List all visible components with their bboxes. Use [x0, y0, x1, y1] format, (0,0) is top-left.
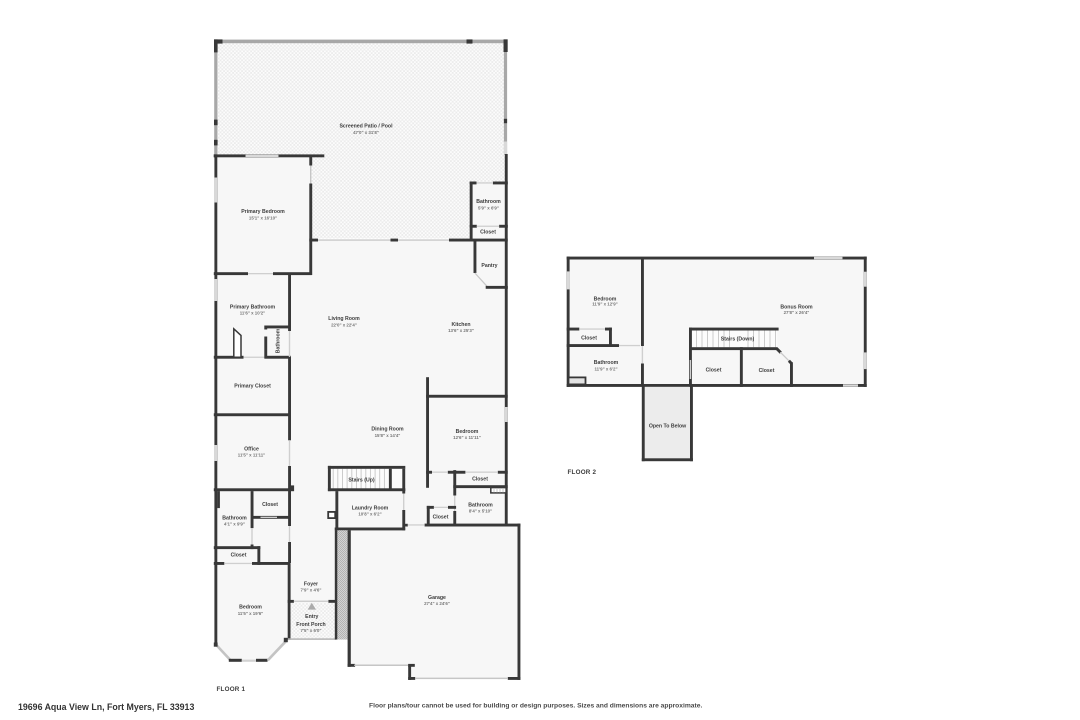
svg-text:Living Room: Living Room	[328, 316, 360, 322]
svg-text:Primary Closet: Primary Closet	[234, 384, 271, 390]
svg-text:Closet: Closet	[706, 368, 722, 374]
svg-text:11'9" x 12'9": 11'9" x 12'9"	[592, 302, 618, 307]
svg-text:13'6" x 25'3": 13'6" x 25'3"	[448, 328, 474, 333]
svg-text:Primary Bedroom: Primary Bedroom	[241, 209, 285, 215]
svg-text:12'6" x 11'11": 12'6" x 11'11"	[453, 435, 481, 440]
svg-text:Stairs (Up): Stairs (Up)	[348, 478, 375, 484]
svg-text:Dining Room: Dining Room	[371, 427, 404, 433]
svg-text:Open To Below: Open To Below	[649, 424, 687, 430]
svg-text:10'8" x 6'2": 10'8" x 6'2"	[358, 512, 381, 517]
svg-text:Bathroom: Bathroom	[594, 360, 619, 366]
svg-text:FLOOR 2: FLOOR 2	[568, 469, 597, 476]
svg-text:22'0" x 22'4": 22'0" x 22'4"	[331, 322, 357, 327]
svg-text:8'4" x 5'10": 8'4" x 5'10"	[469, 509, 492, 514]
svg-text:27'4" x 24'6": 27'4" x 24'6"	[424, 601, 450, 606]
svg-text:19696 Aqua View Ln, Fort Myers: 19696 Aqua View Ln, Fort Myers, FL 33913	[18, 702, 194, 712]
svg-text:Closet: Closet	[581, 336, 597, 342]
svg-text:Entry: Entry	[305, 614, 318, 620]
svg-text:15'8" x 14'4": 15'8" x 14'4"	[375, 433, 401, 438]
svg-text:Bedroom: Bedroom	[239, 605, 262, 611]
svg-text:Closet: Closet	[231, 553, 247, 559]
svg-text:Closet: Closet	[472, 477, 488, 483]
svg-text:Bathroom: Bathroom	[276, 328, 282, 353]
svg-text:5'9" x 6'9": 5'9" x 6'9"	[478, 206, 499, 211]
svg-text:27'8" x 26'4": 27'8" x 26'4"	[784, 310, 810, 315]
svg-text:Bathroom: Bathroom	[476, 199, 501, 205]
svg-text:Closet: Closet	[759, 368, 775, 374]
svg-text:4'1" x 9'9": 4'1" x 9'9"	[224, 522, 245, 527]
svg-text:Pantry: Pantry	[481, 263, 497, 269]
svg-text:Screened Patio / Pool: Screened Patio / Pool	[339, 124, 393, 130]
svg-text:11'9" x 6'2": 11'9" x 6'2"	[594, 367, 617, 372]
svg-text:Closet: Closet	[262, 502, 278, 508]
svg-text:11'5" x 11'11": 11'5" x 11'11"	[238, 453, 266, 458]
svg-text:Closet: Closet	[480, 230, 496, 236]
svg-text:7'5" x 6'0": 7'5" x 6'0"	[301, 628, 322, 633]
svg-text:Closet: Closet	[433, 515, 449, 521]
svg-text:FLOOR 1: FLOOR 1	[217, 686, 246, 693]
svg-text:11'5" x 19'6": 11'5" x 19'6"	[238, 611, 264, 616]
svg-text:15'1" x 16'10": 15'1" x 16'10"	[249, 216, 277, 221]
svg-text:7'9" x 4'6": 7'9" x 4'6"	[301, 588, 322, 593]
svg-text:Stairs (Down): Stairs (Down)	[721, 337, 755, 343]
svg-text:Floor plans/tour cannot be use: Floor plans/tour cannot be used for buil…	[369, 703, 702, 710]
svg-text:47'0" x 31'8": 47'0" x 31'8"	[353, 130, 379, 135]
svg-text:11'6" x 10'2": 11'6" x 10'2"	[240, 311, 266, 316]
